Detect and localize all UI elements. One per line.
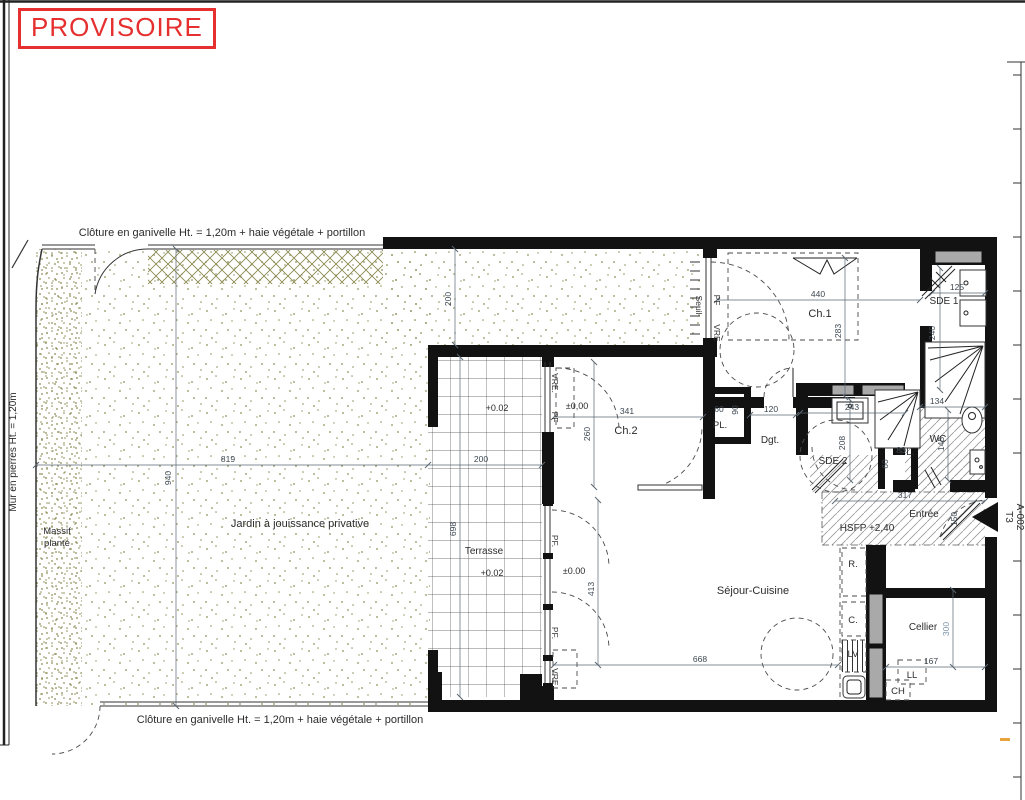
garden — [36, 245, 700, 754]
room-label-ch1: Ch.1 — [808, 308, 831, 320]
room-label-terrasse: Terrasse — [465, 546, 504, 557]
dim-440: 440 — [811, 289, 825, 299]
plan-reference: A-002 — [1014, 504, 1025, 531]
registration-mark — [1000, 738, 1010, 741]
dim-260: 260 — [582, 427, 592, 441]
dim-167: 167 — [924, 656, 938, 666]
appliance-fridge: R. — [848, 559, 858, 570]
room-label-sde2: SDE 2 — [819, 456, 848, 467]
dim-819: 819 — [221, 454, 235, 464]
fence-bottom — [52, 702, 428, 754]
floor-plan-svg: Clôture en ganivelle Ht. = 1,20m + haie … — [0, 0, 1025, 800]
dim-283: 283 — [833, 324, 843, 338]
fence-bottom-label: Clôture en ganivelle Ht. = 1,20m + haie … — [137, 714, 423, 726]
garden-north-strip — [383, 249, 700, 345]
dim-145: 145 — [936, 437, 946, 451]
window-vre-ch1: VRE — [712, 324, 722, 342]
massif-label-2: planté — [44, 538, 70, 549]
level-terrace-1: +0.02 — [486, 403, 509, 413]
dim-150: 150 — [949, 512, 959, 526]
room-label-entree: Entrée — [909, 509, 939, 520]
stone-wall-label: Mur en pierres Ht. = 1,20m — [8, 392, 19, 511]
room-label-sde1: SDE 1 — [930, 296, 959, 307]
dim-698: 698 — [448, 522, 458, 536]
room-label-dgt: Dgt. — [761, 435, 779, 446]
hsfp-label: HSFP +2,40 — [840, 523, 895, 534]
window-pf-sejour-2: PF. — [550, 627, 560, 639]
level-terrace-2: +0.02 — [481, 568, 504, 578]
dim-317: 317 — [898, 490, 912, 500]
dim-125: 125 — [950, 282, 964, 292]
dim-134: 134 — [930, 396, 944, 406]
appliance-boiler: CH — [891, 686, 905, 697]
level-sejour: ±0.00 — [563, 566, 585, 576]
dim-300: 300 — [941, 622, 951, 636]
dim-200-v: 200 — [443, 292, 453, 306]
dim-83: 83 — [896, 445, 906, 455]
window-vre-ch2: VRE. — [550, 373, 560, 393]
room-label-sejour: Séjour-Cuisine — [717, 585, 789, 597]
massif-plante-band — [36, 249, 82, 706]
room-label-ch2: Ch.2 — [614, 425, 637, 437]
dim-60-pl: 60 — [714, 404, 724, 414]
dim-240: 240 — [927, 326, 937, 340]
window-pf-sejour-1: PF. — [550, 535, 560, 547]
appliance-cooker: C. — [848, 615, 858, 626]
window-pf-ch1: PF — [712, 295, 722, 306]
dim-341: 341 — [620, 406, 634, 416]
seuil-label: Seuil — [694, 296, 704, 315]
dim-60-pl2: 60 — [880, 459, 890, 469]
hedge — [148, 250, 383, 284]
dim-668: 668 — [693, 654, 707, 664]
appliance-dishwasher: LV — [848, 649, 860, 660]
fence-top-label: Clôture en ganivelle Ht. = 1,20m + haie … — [79, 227, 365, 239]
lot-number: T3 — [1003, 511, 1014, 523]
dim-200-h: 200 — [474, 454, 488, 464]
dim-243: 243 — [845, 402, 859, 412]
drawing-sheet: Clôture en ganivelle Ht. = 1,20m + haie … — [0, 0, 1025, 800]
room-label-cellier: Cellier — [909, 622, 938, 633]
dim-208: 208 — [837, 436, 847, 450]
appliance-washer: LL — [907, 670, 918, 681]
level-ch2: ±0,00 — [566, 401, 588, 411]
window-vre-sejour: VRE. — [550, 668, 560, 688]
wardrobe — [793, 258, 857, 274]
garden-label: Jardin à jouissance privative — [231, 518, 369, 530]
massif-label-1: Massif — [43, 526, 71, 537]
dim-90: 90 — [730, 405, 740, 415]
dim-940: 940 — [163, 471, 173, 485]
room-label-pl1: PL. — [713, 420, 727, 431]
ruler-ticks — [1013, 75, 1021, 777]
dim-120: 120 — [764, 404, 778, 414]
window-pf-ch2: PF — [550, 412, 560, 423]
provisoire-stamp: PROVISOIRE — [18, 8, 216, 49]
dim-413: 413 — [586, 582, 596, 596]
